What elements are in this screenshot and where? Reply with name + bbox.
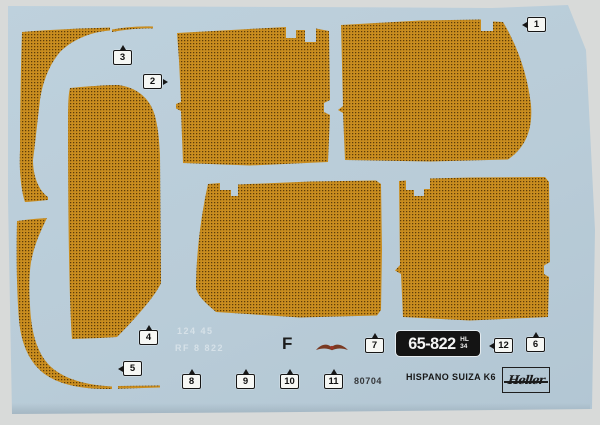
part-label-1: 1 [527,17,546,32]
decal-shapes [0,0,600,425]
ghost-marking-2: RF 8 822 [175,344,224,353]
decal-piece-side-panel [68,85,161,339]
license-plate-decal: 65-822 HL 34 [396,331,480,356]
part-label-11-text: 11 [328,376,338,388]
decal-piece-top-center-panel [176,27,330,166]
part-label-7-text: 7 [372,340,377,352]
part-label-5: 5 [123,361,142,376]
part-label-2-text: 2 [150,76,155,88]
ghost-marking-1: 124 45 [177,327,214,336]
decal-piece-top-right-panel [338,20,531,162]
letter-f-decal: F [282,335,292,352]
part-label-12-text: 12 [498,340,509,352]
part-label-11: 11 [324,374,343,389]
part-label-6-text: 6 [533,339,538,351]
part-label-4: 4 [139,330,158,345]
part-label-8: 8 [182,374,201,389]
part-label-3-text: 3 [120,52,125,64]
part-label-9-text: 9 [243,376,248,388]
product-code: 80704 [354,376,382,386]
stork-emblem-icon [315,341,349,355]
decal-sheet-photo: 1 2 3 4 5 6 7 8 9 10 11 12 65-822 HL 34 … [0,0,600,425]
decal-piece-thin-strip-top [112,26,153,32]
part-label-7: 7 [365,338,384,353]
plate-number: 65-822 [408,335,455,352]
decal-piece-thin-strip-bottom [118,386,160,389]
part-label-8-text: 8 [189,376,194,388]
plate-region-bottom: 34 [460,344,469,351]
decal-piece-mid-right-panel [395,177,550,321]
part-label-10: 10 [280,374,299,389]
part-label-10-text: 10 [284,376,295,388]
part-label-4-text: 4 [146,332,151,344]
plate-region-code: HL 34 [460,337,469,350]
part-label-1-text: 1 [534,19,539,31]
decal-backing-sheet: 1 2 3 4 5 6 7 8 9 10 11 12 65-822 HL 34 … [0,0,600,425]
part-label-2: 2 [143,74,162,89]
model-name: HISPANO SUIZA K6 [406,372,496,382]
part-label-3: 3 [113,50,132,65]
brand-logo: Heller [502,367,550,393]
part-label-6: 6 [526,337,545,352]
part-label-5-text: 5 [130,363,135,375]
part-label-12: 12 [494,338,513,353]
decal-piece-mid-left-panel [196,181,382,318]
brand-logo-text: Heller [507,374,544,386]
part-label-9: 9 [236,374,255,389]
